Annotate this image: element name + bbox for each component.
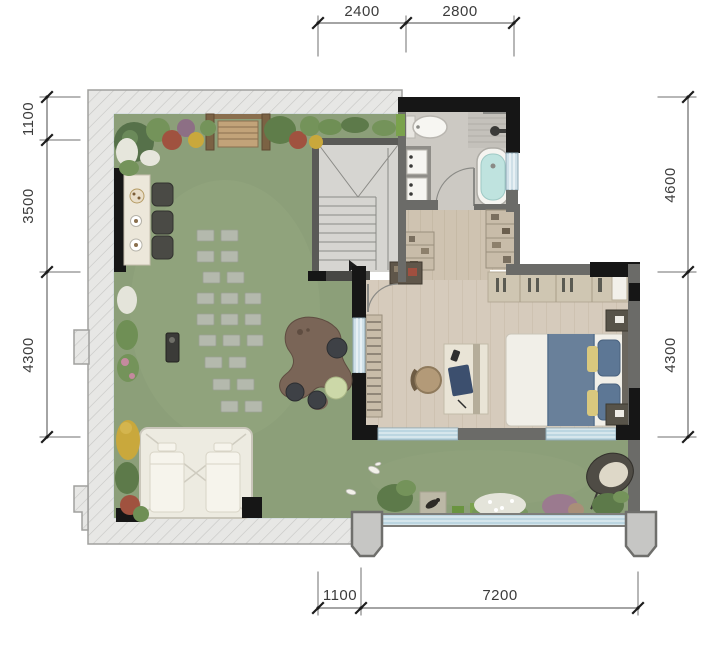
stair-wall-top bbox=[312, 138, 405, 145]
dim-bottom-7200: 7200 bbox=[482, 587, 517, 604]
pillar-left bbox=[352, 512, 382, 556]
stool-cushion-green bbox=[325, 377, 347, 399]
roof-notch-mid-left bbox=[74, 330, 89, 364]
wall-bedroom-bottom-black-left bbox=[352, 425, 378, 440]
pillow-yellow-top bbox=[587, 346, 598, 372]
wall-bathroom-left bbox=[398, 112, 406, 282]
wall-bathroom-top bbox=[398, 97, 520, 112]
outdoor-dining-table bbox=[124, 175, 150, 265]
window-bedroom-bottom-1 bbox=[378, 428, 458, 440]
floor-plan: 2400 2800 1100 3500 4300 bbox=[0, 0, 715, 649]
stair-wall-bottom-black bbox=[308, 271, 326, 281]
stair-wall-left bbox=[312, 138, 319, 274]
window-bedroom-bottom-2 bbox=[546, 428, 616, 440]
dim-bottom-1100: 1100 bbox=[323, 587, 357, 604]
canopy-tent bbox=[140, 428, 252, 518]
shower-head-icon bbox=[490, 126, 500, 136]
window-bathroom-right bbox=[506, 153, 518, 190]
grill-icon bbox=[166, 333, 179, 362]
dim-right-4600: 4600 bbox=[662, 167, 679, 202]
planter-black-right bbox=[242, 497, 262, 518]
stair-floor bbox=[319, 145, 399, 272]
bathtub bbox=[477, 148, 509, 206]
pillow-yellow-bottom bbox=[587, 390, 598, 416]
wall-bedroom-left-black-top bbox=[352, 266, 366, 318]
toilet bbox=[406, 116, 447, 138]
pillow-blue-top bbox=[598, 340, 620, 376]
wall-right-black-2 bbox=[629, 388, 640, 430]
wall-right-black-1 bbox=[629, 283, 640, 301]
dim-top-2800: 2800 bbox=[442, 3, 477, 20]
wall-bedroom-left-black-bottom bbox=[352, 373, 366, 427]
double-sink-vanity bbox=[404, 146, 431, 206]
dim-top-2400: 2400 bbox=[344, 3, 379, 20]
terrace-railing bbox=[352, 512, 656, 556]
bookshelf bbox=[366, 315, 382, 417]
window-bedroom-left bbox=[353, 318, 365, 373]
stepping-stone-with-bird bbox=[420, 492, 446, 516]
desk-chair bbox=[412, 367, 441, 393]
dim-left-1100: 1100 bbox=[20, 102, 37, 136]
dimension-chain-right: 4600 4300 bbox=[658, 92, 696, 442]
dimension-chain-left: 1100 3500 4300 bbox=[20, 92, 80, 442]
plate-icon bbox=[130, 189, 144, 203]
floor-plan-canvas: 2400 2800 1100 3500 4300 bbox=[0, 0, 715, 649]
shower bbox=[468, 112, 506, 148]
desk bbox=[444, 344, 488, 414]
bedroom bbox=[364, 262, 633, 430]
wall-bathroom-right-gray bbox=[506, 190, 518, 212]
dimension-chain-bottom: 1100 7200 bbox=[313, 568, 643, 615]
sun-lounger-right bbox=[206, 452, 240, 512]
pillar-right bbox=[626, 512, 656, 556]
sun-lounger-left bbox=[150, 452, 184, 512]
dim-right-4300: 4300 bbox=[662, 337, 679, 372]
wall-bathroom-right-black bbox=[506, 97, 520, 153]
corridor-wall-right bbox=[514, 210, 520, 268]
bathroom bbox=[398, 99, 520, 212]
dining-chairs bbox=[152, 183, 173, 259]
roof-notch-bottom-left bbox=[74, 486, 88, 530]
walk-in-closet-right bbox=[486, 210, 516, 268]
wall-bedroom-bottom-gray bbox=[458, 428, 546, 440]
dim-left-4300: 4300 bbox=[20, 337, 37, 372]
wall-bedroom-bottom-black-right bbox=[616, 425, 640, 440]
stairwell bbox=[308, 138, 405, 281]
dimension-chain-top: 2400 2800 bbox=[313, 3, 519, 56]
dim-left-3500: 3500 bbox=[20, 188, 37, 223]
glass-railing bbox=[380, 514, 628, 526]
